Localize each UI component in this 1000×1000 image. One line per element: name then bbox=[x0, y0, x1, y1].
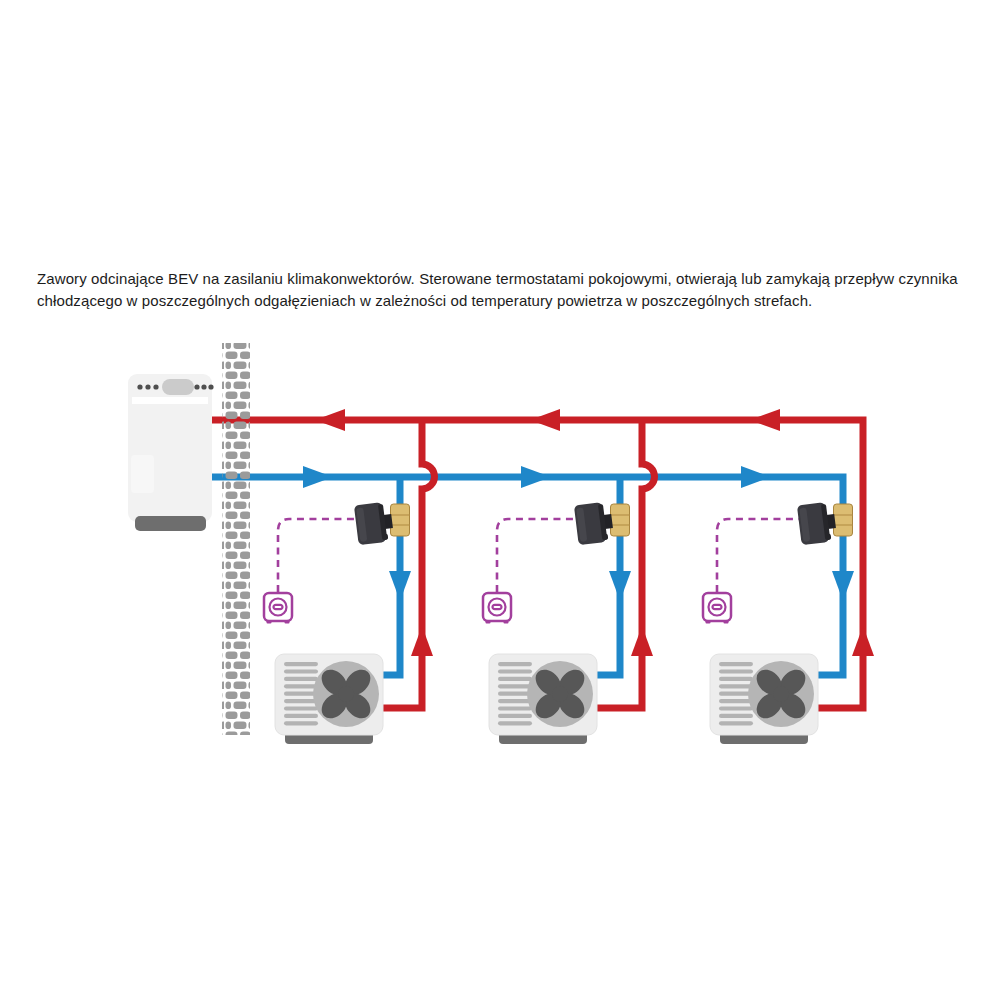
flow-arrow-left-icon bbox=[530, 409, 560, 431]
fan-coil-unit-1 bbox=[275, 654, 383, 744]
flow-arrow-down-icon bbox=[832, 571, 854, 601]
room-thermostat-1 bbox=[264, 593, 292, 624]
flow-arrow-down-icon bbox=[609, 571, 631, 601]
flow-arrow-up-icon bbox=[852, 626, 874, 656]
control-line-1 bbox=[278, 519, 357, 592]
flow-arrow-left-icon bbox=[315, 409, 345, 431]
diagram-page: Zawory odcinające BEV na zasilaniu klima… bbox=[0, 0, 1000, 1000]
fan-coil-unit-2 bbox=[489, 654, 597, 744]
pump-panel bbox=[131, 455, 154, 493]
hvac-piping-diagram bbox=[0, 0, 1000, 1000]
flow-arrow-right-icon bbox=[521, 466, 551, 488]
control-line-2 bbox=[497, 519, 577, 592]
pump-stripe bbox=[132, 397, 208, 404]
heat-pump bbox=[128, 374, 214, 531]
flow-arrow-right-icon bbox=[741, 466, 771, 488]
room-thermostat-2 bbox=[483, 593, 511, 624]
control-line-3 bbox=[717, 519, 800, 592]
room-thermostat-3 bbox=[703, 593, 731, 624]
flow-arrow-up-icon bbox=[411, 626, 433, 656]
supply-pipe-blue bbox=[206, 466, 854, 675]
fan-coil-unit-3 bbox=[710, 654, 818, 744]
flow-arrow-left-icon bbox=[750, 409, 780, 431]
flow-arrow-right-icon bbox=[303, 466, 333, 488]
pump-display bbox=[162, 379, 194, 395]
brick-wall bbox=[222, 343, 250, 735]
flow-arrow-down-icon bbox=[389, 571, 411, 601]
flow-arrow-up-icon bbox=[631, 626, 653, 656]
